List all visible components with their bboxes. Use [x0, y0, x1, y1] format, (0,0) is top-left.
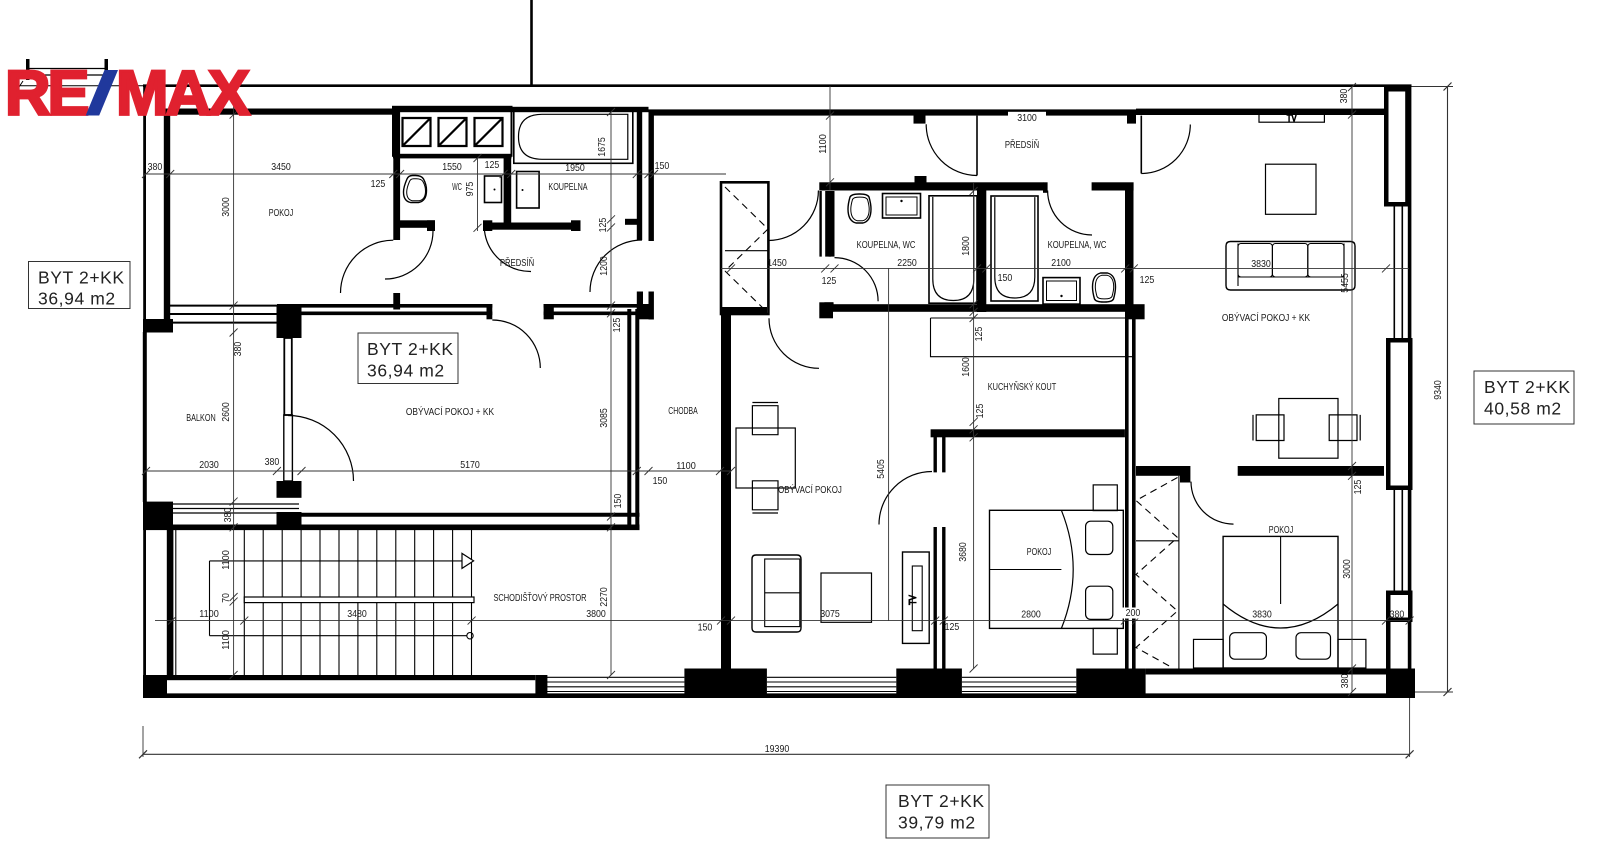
svg-text:380: 380 [1338, 89, 1350, 104]
svg-text:125: 125 [974, 404, 986, 419]
svg-text:36,94 m2: 36,94 m2 [38, 289, 116, 309]
svg-text:150: 150 [998, 272, 1013, 284]
svg-text:125: 125 [485, 159, 500, 171]
svg-text:2030: 2030 [199, 459, 219, 471]
svg-text:125: 125 [945, 621, 960, 633]
svg-text:RE: RE [5, 59, 87, 129]
svg-text:125: 125 [1140, 274, 1155, 286]
svg-text:1100: 1100 [220, 630, 232, 650]
svg-text:BYT 2+KK: BYT 2+KK [1484, 377, 1571, 397]
svg-text:36,94 m2: 36,94 m2 [367, 361, 445, 381]
svg-text:19390: 19390 [765, 743, 790, 755]
svg-text:5170: 5170 [460, 459, 480, 471]
svg-text:1675: 1675 [596, 137, 608, 157]
svg-text:2600: 2600 [220, 402, 232, 422]
svg-text:40,58 m2: 40,58 m2 [1484, 399, 1562, 419]
svg-text:TV: TV [1287, 112, 1297, 124]
svg-text:OBÝVACÍ POKOJ + KK: OBÝVACÍ POKOJ + KK [1222, 311, 1310, 324]
svg-text:380: 380 [148, 161, 163, 173]
svg-text:125: 125 [611, 318, 623, 333]
svg-text:150: 150 [612, 494, 624, 509]
svg-text:125: 125 [822, 275, 837, 287]
svg-text:KOUPELNA: KOUPELNA [548, 181, 587, 193]
svg-text:70: 70 [220, 593, 232, 603]
svg-text:3075: 3075 [820, 608, 840, 620]
svg-text:PŘEDSÍŇ: PŘEDSÍŇ [500, 256, 534, 269]
svg-text:2800: 2800 [1021, 609, 1041, 621]
svg-text:975: 975 [464, 182, 476, 197]
svg-text:380: 380 [1390, 609, 1405, 621]
svg-text:BYT 2+KK: BYT 2+KK [367, 339, 454, 359]
svg-text:MAX: MAX [116, 59, 250, 129]
svg-text:1100: 1100 [676, 460, 696, 472]
svg-text:3800: 3800 [586, 608, 606, 620]
svg-text:1100: 1100 [817, 134, 829, 154]
svg-text:KOUPELNA, WC: KOUPELNA, WC [1048, 239, 1107, 251]
svg-text:3830: 3830 [1251, 258, 1271, 270]
svg-text:3000: 3000 [1341, 559, 1353, 579]
svg-text:KUCHYŇSKÝ KOUT: KUCHYŇSKÝ KOUT [988, 380, 1057, 393]
svg-text:125: 125 [1352, 480, 1364, 495]
svg-text:BYT 2+KK: BYT 2+KK [898, 791, 985, 811]
svg-text:1800: 1800 [960, 236, 972, 256]
svg-text:380: 380 [1339, 674, 1351, 689]
svg-text:POKOJ: POKOJ [1269, 524, 1294, 536]
svg-text:SCHODIŠŤOVÝ PROSTOR: SCHODIŠŤOVÝ PROSTOR [493, 591, 586, 604]
svg-text:TV: TV [907, 595, 919, 605]
svg-text:1200: 1200 [598, 256, 610, 276]
svg-text:5455: 5455 [1339, 273, 1351, 293]
svg-text:1100: 1100 [220, 550, 232, 570]
svg-text:CHODBA: CHODBA [668, 405, 697, 417]
svg-text:150: 150 [655, 160, 670, 172]
svg-text:POKOJ: POKOJ [269, 207, 294, 219]
svg-text:KOUPELNA, WC: KOUPELNA, WC [857, 239, 916, 251]
svg-text:1950: 1950 [565, 162, 585, 174]
svg-text:125: 125 [371, 178, 386, 190]
svg-text:3000: 3000 [220, 197, 232, 217]
svg-text:2100: 2100 [1051, 257, 1071, 269]
svg-text:125: 125 [597, 218, 609, 233]
svg-text:125: 125 [973, 327, 985, 342]
svg-text:WC: WC [452, 181, 462, 193]
svg-text:3680: 3680 [957, 542, 969, 562]
svg-text:3480: 3480 [347, 608, 367, 620]
svg-text:3830: 3830 [1252, 609, 1272, 621]
svg-text:380: 380 [222, 508, 234, 523]
svg-text:3100: 3100 [1017, 112, 1037, 124]
svg-text:9340: 9340 [1432, 380, 1444, 400]
svg-text:PŘEDSÍŇ: PŘEDSÍŇ [1005, 138, 1039, 151]
svg-text:2270: 2270 [598, 587, 610, 607]
svg-text:1450: 1450 [767, 257, 787, 269]
svg-text:150: 150 [653, 475, 668, 487]
svg-text:2250: 2250 [897, 257, 917, 269]
svg-text:BYT 2+KK: BYT 2+KK [38, 268, 125, 288]
svg-text:1600: 1600 [960, 357, 972, 377]
svg-text:BALKON: BALKON [186, 412, 215, 424]
svg-text:200: 200 [1126, 607, 1141, 619]
svg-text:380: 380 [232, 342, 244, 357]
svg-text:150: 150 [698, 622, 713, 634]
svg-text:5405: 5405 [875, 459, 887, 479]
svg-text:OBÝVACÍ POKOJ + KK: OBÝVACÍ POKOJ + KK [406, 405, 494, 418]
svg-text:1100: 1100 [199, 608, 219, 620]
svg-text:380: 380 [265, 456, 280, 468]
svg-text:OBÝVACÍ POKOJ: OBÝVACÍ POKOJ [778, 483, 842, 496]
svg-text:3450: 3450 [271, 161, 291, 173]
svg-text:POKOJ: POKOJ [1027, 546, 1052, 558]
svg-text:39,79 m2: 39,79 m2 [898, 813, 976, 833]
svg-text:1550: 1550 [442, 161, 462, 173]
svg-text:3085: 3085 [598, 408, 610, 428]
